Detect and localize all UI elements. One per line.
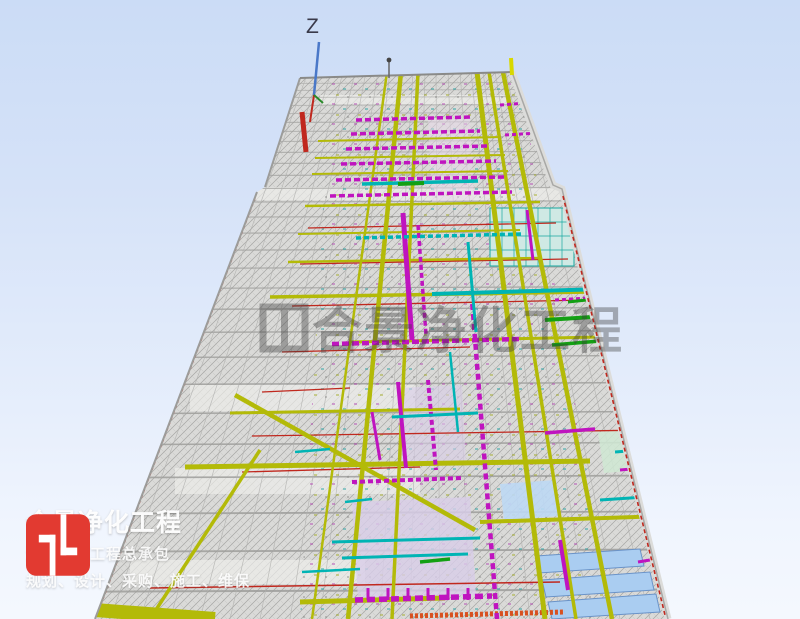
watermark-logo-bar bbox=[281, 307, 288, 349]
company-branding: 合景净化工程 洁净车间工程总承包 规划、设计、采购、施工、维保 bbox=[26, 511, 250, 591]
watermark: 合景净化工程 bbox=[263, 303, 624, 359]
viewer-stage: Z 合景净化工程 合景净化工程 洁净车间工程总承包 规划、设计、采购、施工、维保 bbox=[0, 0, 800, 619]
z-axis-label: Z bbox=[306, 15, 319, 38]
company-logo-icon bbox=[26, 511, 90, 579]
watermark-text: 合景净化工程 bbox=[312, 303, 624, 359]
